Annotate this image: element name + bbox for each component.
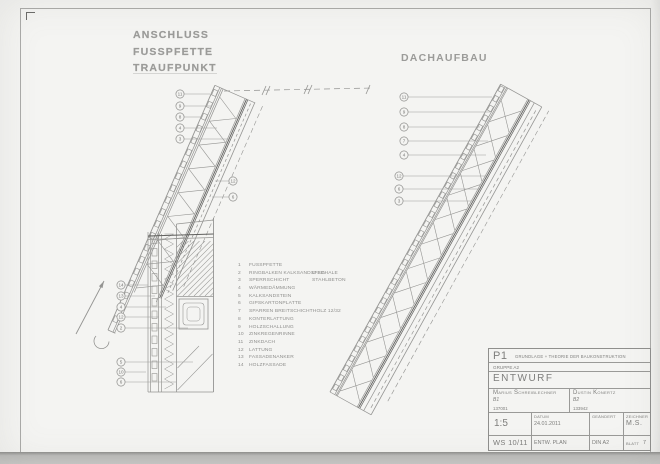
callout-number: 6 (120, 380, 123, 385)
project-title: GRUNDLAGE + THEORIE DER BAUKONSTRUKTION (515, 354, 626, 359)
callout-number: 12 (396, 174, 402, 179)
legend-item-number: 8 (238, 317, 249, 322)
legend-item-label: ZINKREGENRINNE (249, 332, 295, 337)
callout-number: 6 (232, 195, 235, 200)
callout-number: 14 (118, 283, 124, 288)
callout: 12 (117, 313, 159, 321)
date-label: DATUM (534, 414, 549, 419)
legend-item-number: 6 (238, 301, 249, 306)
scale-value: 1:5 (494, 418, 508, 429)
legend-item-number: 4 (238, 286, 249, 291)
legend-item: 10ZINKREGENRINNE (238, 332, 388, 340)
callout: 6 (395, 185, 482, 193)
callout-number: 9 (403, 110, 406, 115)
legend-item: 11ZINKDACH (238, 340, 388, 348)
callout-number: 3 (179, 137, 182, 142)
callout: 11 (400, 93, 492, 101)
phase-label: ENTWURF (493, 373, 554, 384)
callout-number: 7 (403, 139, 406, 144)
legend-item-label: SPARREN BREITSCHICHTHOLZ 12/32 (249, 309, 341, 314)
legend-item: 3SPERRSCHICHTSTAHLBETON (238, 278, 388, 286)
callout: 4 (400, 151, 486, 159)
legend-item-number: 9 (238, 325, 249, 330)
legend-item-label: HOLZSCHALLUNG (249, 325, 294, 330)
author-1-id: B1 (493, 397, 556, 404)
author-1: Marius Schreiblechner B1 137001 (493, 390, 556, 412)
callout: 10 (117, 368, 146, 376)
legend-item: 1FUSSPFETTE (238, 263, 388, 271)
format-value: DIN A2 (592, 440, 609, 446)
callout: 6 (212, 193, 237, 201)
author-2-id: B2 (573, 397, 616, 404)
legend-item-number: 12 (238, 348, 249, 353)
sheet-label: BLATT (626, 441, 639, 446)
legend-item-label: KONTERLATTUNG (249, 317, 294, 322)
changed-label: GEÄNDERT (592, 414, 616, 419)
callout-number: 12 (118, 315, 124, 320)
eave-detail-callouts: 119843126141341225106 (117, 90, 237, 386)
drafter-value: M.S. (626, 420, 642, 427)
scan-edge-bottom (0, 452, 660, 464)
callout-number: 2 (120, 326, 123, 331)
legend-item-label: GIPSKARTONPLATTE (249, 301, 301, 306)
callout: 9 (400, 108, 490, 116)
legend-item-label: WÄRMEDÄMMUNG (249, 286, 295, 291)
callout-number: 11 (178, 92, 183, 97)
legend-item-note: STAHLBETON (312, 278, 346, 283)
legend-item-number: 10 (238, 332, 249, 337)
legend-item-label: KALKSANDSTEIN (249, 294, 291, 299)
callout: 13 (117, 292, 155, 300)
callout: 8 (400, 123, 480, 131)
legend-item: 13FASSADENANKER (238, 355, 388, 363)
legend-item-number: 13 (238, 355, 249, 360)
drafter-label: ZEICHNER (626, 414, 648, 419)
title-block: P1 GRUNDLAGE + THEORIE DER BAUKONSTRUKTI… (488, 348, 651, 451)
legend-item-number: 1 (238, 263, 249, 268)
callout-number: 8 (179, 115, 182, 120)
date-value: 24.01.2011 (534, 421, 561, 427)
legend-item-label: ZINKDACH (249, 340, 275, 345)
legend-item-number: 2 (238, 271, 249, 276)
callout: 11 (176, 90, 210, 98)
callout: 7 (400, 137, 488, 145)
group-label: GRUPPE A2 (493, 365, 519, 370)
author-2: Dustin Konertz B2 133942 (573, 390, 616, 412)
callout: 3 (176, 135, 230, 143)
plan-type: ENTW. PLAN (534, 440, 567, 446)
legend-item: 8KONTERLATTUNG (238, 317, 388, 325)
paper-sheet: ANSCHLUSS FUSSPFETTE TRAUFPUNKT DACHAUFB… (0, 0, 660, 464)
legend-item: 6GIPSKARTONPLATTE (238, 301, 388, 309)
author-1-matric: 137001 (493, 405, 556, 412)
legend-item-label: SPERRSCHICHT (249, 278, 289, 283)
callout-number: 10 (118, 370, 124, 375)
callout-number: 13 (118, 294, 124, 299)
callout-number: 8 (403, 125, 406, 130)
callout-number: 9 (179, 104, 182, 109)
callout: 12 (215, 177, 237, 185)
author-2-name: Dustin Konertz (573, 390, 616, 397)
callout-number: 4 (403, 153, 406, 158)
legend-item-label: HOLZFASSADE (249, 363, 286, 368)
callout: 12 (395, 172, 487, 180)
callout: 8 (176, 113, 202, 121)
callout-number: 11 (402, 95, 407, 100)
legend-list: 1FUSSPFETTE2RINGBALKEN KALKSANDSTEINU-SC… (238, 263, 388, 371)
scan-edge-right (650, 0, 660, 452)
callout-number: 4 (179, 126, 182, 131)
roof-buildup-callouts: 1198741263 (395, 93, 492, 205)
sheet-number: 7 (643, 440, 646, 446)
legend-item-label: FUSSPFETTE (249, 263, 282, 268)
project-code: P1 (493, 350, 507, 362)
legend-item-note: U-SCHALE (312, 271, 338, 276)
legend-item: 14HOLZFASSADE (238, 363, 388, 371)
callout: 5 (117, 358, 193, 366)
legend-item: 7SPARREN BREITSCHICHTHOLZ 12/32 (238, 309, 388, 317)
callout-number: 12 (230, 179, 236, 184)
callout-number: 3 (398, 199, 401, 204)
callout-number: 4 (120, 305, 123, 310)
author-2-matric: 133942 (573, 405, 616, 412)
callout: 9 (176, 102, 212, 110)
legend-item-label: LATTUNG (249, 348, 273, 353)
legend-item-number: 5 (238, 294, 249, 299)
callout-number: 5 (120, 360, 123, 365)
legend-item-number: 14 (238, 363, 249, 368)
legend-item-number: 11 (238, 340, 249, 345)
callout: 6 (117, 378, 176, 386)
callout-number: 6 (398, 187, 401, 192)
legend-item-label: FASSADENANKER (249, 355, 294, 360)
author-1-name: Marius Schreiblechner (493, 390, 556, 397)
semester-value: WS 10/11 (493, 438, 528, 447)
legend-item-number: 3 (238, 278, 249, 283)
legend-item-number: 7 (238, 309, 249, 314)
legend-item: 4WÄRMEDÄMMUNG (238, 286, 388, 294)
